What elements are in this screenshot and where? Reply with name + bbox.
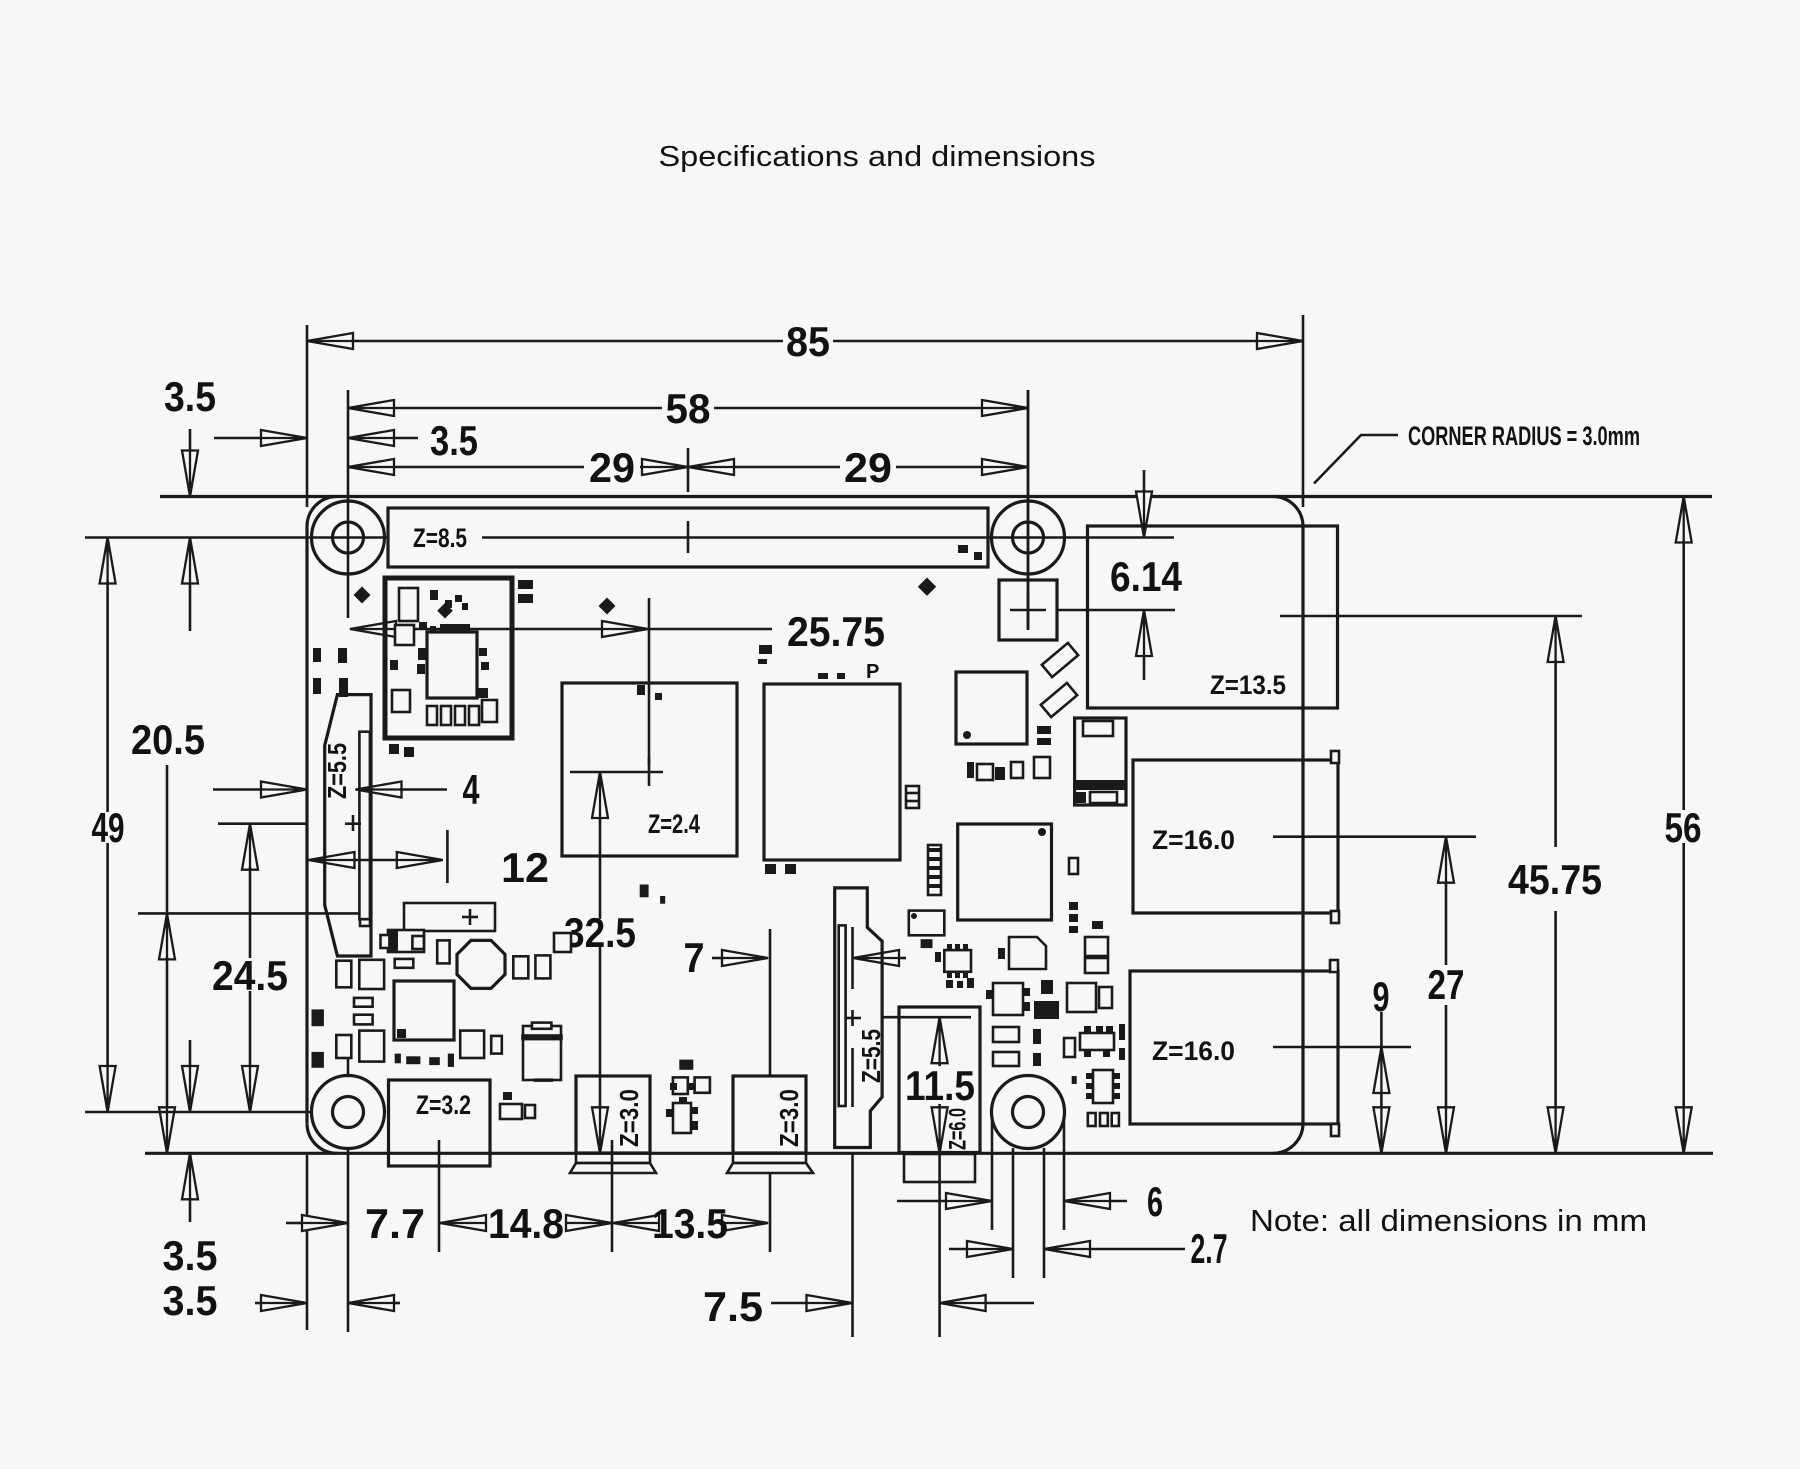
svg-text:14.8: 14.8	[488, 1200, 564, 1247]
svg-text:49: 49	[92, 804, 125, 851]
svg-text:3.5: 3.5	[163, 1277, 218, 1324]
svg-text:3.5: 3.5	[164, 373, 216, 420]
svg-text:7.5: 7.5	[703, 1283, 763, 1330]
svg-text:Z=3.2: Z=3.2	[416, 1090, 471, 1120]
svg-text:3.5: 3.5	[163, 1232, 218, 1279]
svg-text:85: 85	[786, 318, 830, 365]
svg-text:11.5: 11.5	[905, 1062, 975, 1109]
svg-text:32.5: 32.5	[564, 909, 636, 956]
svg-text:6.14: 6.14	[1110, 553, 1183, 600]
svg-text:Z=3.0: Z=3.0	[774, 1089, 804, 1147]
svg-text:Z=5.5: Z=5.5	[856, 1029, 886, 1083]
svg-text:27: 27	[1428, 961, 1465, 1008]
svg-text:4: 4	[463, 766, 480, 813]
svg-text:Z=2.4: Z=2.4	[648, 809, 700, 839]
svg-text:25.75: 25.75	[787, 608, 885, 655]
svg-text:58: 58	[666, 385, 711, 432]
svg-text:20.5: 20.5	[131, 716, 205, 763]
svg-text:Z=5.5: Z=5.5	[322, 743, 352, 799]
svg-text:24.5: 24.5	[212, 952, 288, 999]
svg-text:45.75: 45.75	[1508, 856, 1602, 903]
svg-text:Z=16.0: Z=16.0	[1152, 1036, 1235, 1066]
svg-text:2.7: 2.7	[1191, 1225, 1228, 1272]
svg-text:7: 7	[684, 934, 705, 981]
svg-text:Z=3.0: Z=3.0	[614, 1089, 644, 1147]
svg-text:13.5: 13.5	[652, 1200, 728, 1247]
svg-text:Specifications and dimensions: Specifications and dimensions	[659, 141, 1096, 173]
svg-text:CORNER RADIUS = 3.0mm: CORNER RADIUS = 3.0mm	[1408, 421, 1640, 451]
svg-text:3.5: 3.5	[430, 417, 478, 464]
svg-text:Z=13.5: Z=13.5	[1210, 670, 1286, 700]
svg-text:12: 12	[501, 844, 549, 891]
svg-text:6: 6	[1147, 1178, 1163, 1225]
svg-text:29: 29	[589, 444, 635, 491]
svg-text:Z=16.0: Z=16.0	[1152, 825, 1235, 855]
svg-text:Z=8.5: Z=8.5	[413, 523, 467, 553]
svg-text:56: 56	[1665, 804, 1702, 851]
svg-text:29: 29	[844, 444, 892, 491]
svg-text:Z=6.0: Z=6.0	[945, 1108, 972, 1150]
svg-text:7.7: 7.7	[365, 1200, 425, 1247]
svg-text:Note: all dimensions in mm: Note: all dimensions in mm	[1250, 1203, 1647, 1238]
svg-text:P: P	[866, 661, 879, 683]
